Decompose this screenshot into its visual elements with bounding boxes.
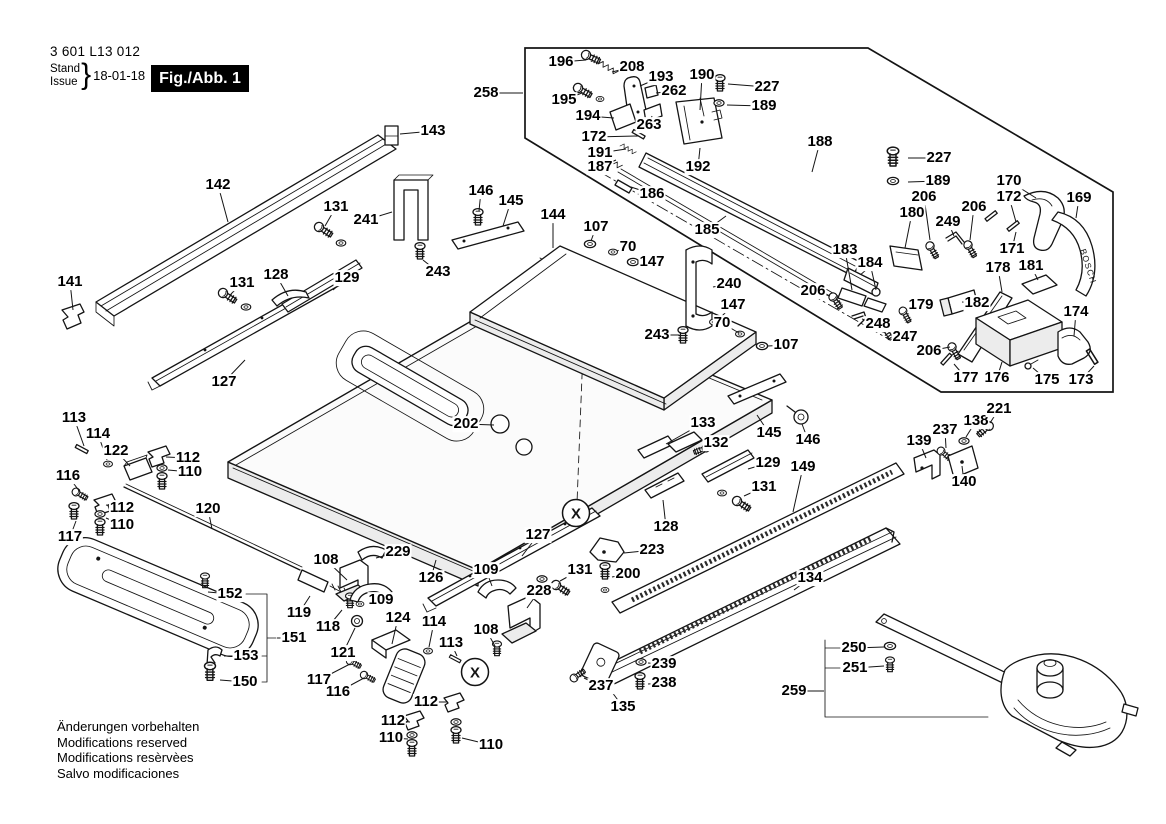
- nut-121: [352, 616, 363, 627]
- bracket-240: [686, 246, 712, 330]
- cam-229: [358, 546, 386, 560]
- lever-109-right: [478, 580, 516, 598]
- detail-marker-x: X: [563, 500, 590, 527]
- stand-label: Stand: [50, 63, 80, 76]
- washer-114-b: [424, 648, 433, 654]
- washer-107-a: [584, 240, 595, 247]
- cover-151: [50, 530, 276, 682]
- notice-line-fr: Modifications resèrvèes: [57, 750, 199, 766]
- rail-142: [96, 135, 396, 326]
- washer-239: [636, 659, 646, 665]
- set-110-d: [451, 719, 461, 743]
- bolt-117-b: [345, 656, 362, 670]
- bolt-116-a: [71, 487, 89, 502]
- svg-text:X: X: [470, 665, 480, 682]
- pin-171: [1007, 221, 1019, 232]
- bolt-131-b: [217, 287, 251, 310]
- knob-124: [372, 630, 428, 706]
- issue-date: 18-01-18: [93, 68, 145, 83]
- brace-glyph: }: [81, 62, 91, 88]
- bar-129-upper: [282, 260, 362, 312]
- nut-262: [645, 85, 658, 98]
- spring-191: [620, 143, 636, 156]
- wedge-263: [644, 104, 662, 122]
- parts-diagram-page: BOSCH: [0, 0, 1166, 824]
- set-110-a: [157, 465, 167, 489]
- washer-250: [884, 642, 895, 649]
- washer-189-b: [887, 177, 898, 184]
- modifications-notice: Änderungen vorbehalten Modifications res…: [57, 719, 199, 781]
- plate-223: [590, 538, 624, 562]
- screw-243-a: [415, 243, 425, 259]
- screw-175: [1025, 360, 1038, 369]
- set-110-b: [95, 511, 105, 535]
- screw-227-b: [887, 147, 899, 166]
- issue-label: Issue: [50, 76, 80, 89]
- bracket-241: [394, 175, 433, 240]
- washer-189-a: [714, 100, 724, 106]
- revision-block: Stand Issue } 18-01-18: [50, 63, 145, 88]
- miter-gauge: [876, 614, 1138, 756]
- svg-text:X: X: [571, 506, 581, 523]
- screw-221: [975, 420, 995, 439]
- washer-147-b: [710, 319, 719, 325]
- screw-150: [205, 662, 216, 680]
- spring-208: [598, 60, 618, 76]
- document-number: 3 601 L13 012: [50, 44, 140, 59]
- clip-112-d: [404, 711, 424, 730]
- notice-line-es: Salvo modificaciones: [57, 766, 199, 782]
- pin-172-a: [632, 130, 645, 139]
- screw-227-a: [715, 75, 725, 91]
- bolt-116-b: [359, 670, 376, 684]
- clamp-228-right: [493, 596, 541, 656]
- washer-107-b: [756, 342, 767, 349]
- pin-249: [946, 232, 964, 244]
- pin-113-b: [449, 655, 461, 663]
- screw-152: [201, 573, 210, 588]
- plate-183: [838, 288, 866, 306]
- pin-186: [615, 180, 632, 193]
- insert-hole: [491, 415, 509, 433]
- pad-181: [1022, 275, 1057, 294]
- bolt-131-c: [537, 576, 571, 597]
- bolt-131-a: [313, 221, 346, 246]
- clip-248: [852, 312, 866, 326]
- screw-200: [600, 563, 610, 593]
- sleeve-119: [298, 570, 328, 592]
- block-122: [124, 455, 152, 480]
- screw-146-a: [473, 209, 483, 225]
- screw-195: [572, 82, 604, 102]
- clip-112-a: [148, 446, 170, 467]
- washer-70-a: [609, 249, 618, 255]
- screw-117-a: [69, 503, 79, 519]
- screw-146-b: [787, 406, 808, 424]
- clip-143: [385, 126, 398, 145]
- insert-hole: [516, 439, 532, 455]
- screw-251: [886, 657, 895, 672]
- pin-113-a: [75, 445, 88, 454]
- bracket-139: [914, 450, 940, 479]
- fence-rail-188: [639, 153, 866, 276]
- notice-line-en: Modifications reserved: [57, 735, 199, 751]
- exploded-view-drawing: BOSCH: [0, 0, 1166, 824]
- washer-138: [959, 438, 969, 444]
- pin-177: [941, 353, 952, 365]
- detail-marker-x: X: [462, 659, 489, 686]
- screw-179: [898, 306, 913, 324]
- screw-238: [635, 673, 645, 689]
- bolt-131-d: [718, 490, 753, 513]
- bar-129-lower: [702, 450, 754, 482]
- screw-206-b: [924, 240, 940, 259]
- rail-end-180: [890, 246, 922, 270]
- washer-114-a: [104, 461, 113, 467]
- bracket-lines-259: [825, 640, 988, 717]
- screw-196: [580, 49, 602, 66]
- washer-147-a: [627, 258, 638, 265]
- strip-145-a: [452, 222, 524, 249]
- notice-line-de: Änderungen vorbehalten: [57, 719, 199, 735]
- pin-172-b: [985, 211, 997, 222]
- screw-206-c: [962, 239, 978, 258]
- figure-label: Fig./Abb. 1: [151, 65, 249, 92]
- set-110-c: [407, 732, 417, 756]
